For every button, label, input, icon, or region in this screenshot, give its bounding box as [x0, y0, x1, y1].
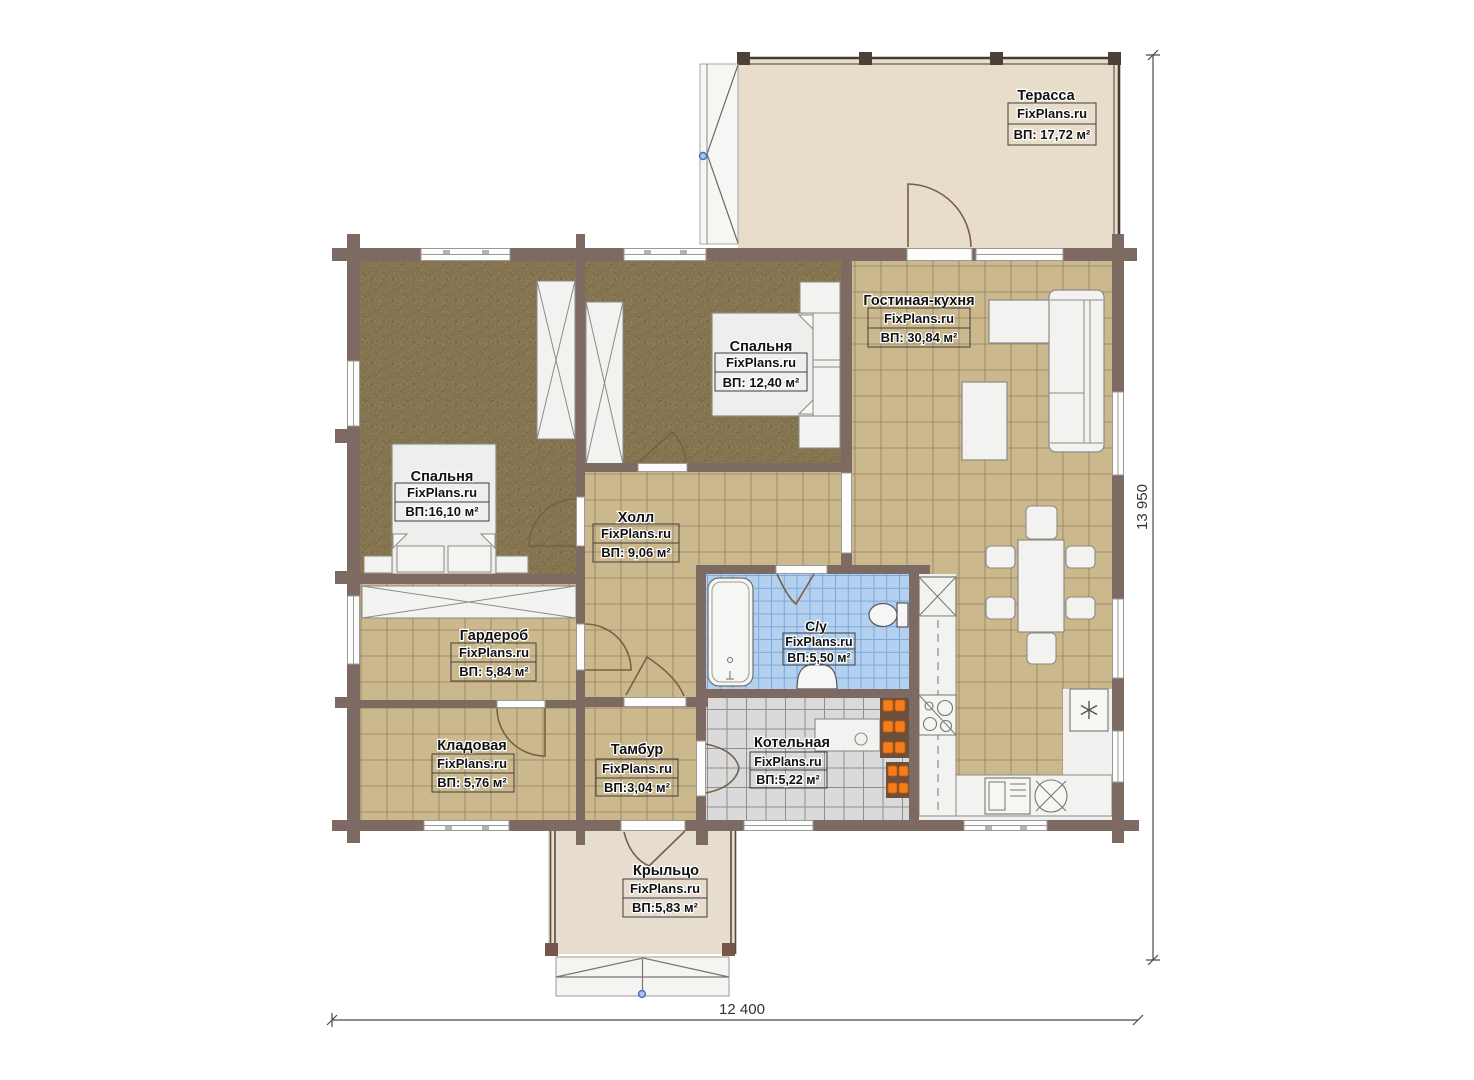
svg-text:FixPlans.ru: FixPlans.ru: [754, 755, 821, 769]
svg-text:С/у: С/у: [805, 618, 827, 634]
svg-text:FixPlans.ru: FixPlans.ru: [726, 355, 796, 370]
svg-text:Гардероб: Гардероб: [460, 628, 529, 644]
svg-text:Кладовая: Кладовая: [437, 738, 506, 754]
svg-text:Крыльцо: Крыльцо: [633, 863, 699, 879]
svg-text:ВП: 30,84 м²: ВП: 30,84 м²: [881, 330, 958, 345]
svg-text:FixPlans.ru: FixPlans.ru: [437, 756, 507, 771]
svg-text:ВП:5,50 м²: ВП:5,50 м²: [787, 651, 850, 665]
svg-text:ВП:5,22 м²: ВП:5,22 м²: [756, 773, 819, 787]
svg-text:13 950: 13 950: [1134, 484, 1151, 530]
svg-text:FixPlans.ru: FixPlans.ru: [602, 761, 672, 776]
svg-text:ВП: 5,76 м²: ВП: 5,76 м²: [437, 775, 507, 790]
svg-text:ВП: 17,72 м²: ВП: 17,72 м²: [1014, 127, 1091, 142]
svg-text:Терасса: Терасса: [1017, 88, 1075, 104]
svg-text:ВП: 9,06 м²: ВП: 9,06 м²: [601, 545, 671, 560]
svg-text:FixPlans.ru: FixPlans.ru: [1017, 106, 1087, 121]
svg-text:ВП:16,10 м²: ВП:16,10 м²: [405, 504, 479, 519]
svg-text:ВП: 12,40 м²: ВП: 12,40 м²: [723, 375, 800, 390]
svg-text:Тамбур: Тамбур: [611, 742, 664, 758]
svg-text:Котельная: Котельная: [754, 735, 830, 751]
svg-text:FixPlans.ru: FixPlans.ru: [785, 635, 852, 649]
svg-text:12 400: 12 400: [719, 1001, 765, 1018]
svg-text:FixPlans.ru: FixPlans.ru: [630, 881, 700, 896]
svg-text:FixPlans.ru: FixPlans.ru: [459, 645, 529, 660]
svg-text:ВП:3,04 м²: ВП:3,04 м²: [604, 780, 671, 795]
svg-text:ВП:5,83 м²: ВП:5,83 м²: [632, 900, 699, 915]
svg-text:FixPlans.ru: FixPlans.ru: [601, 526, 671, 541]
svg-text:ВП: 5,84 м²: ВП: 5,84 м²: [459, 664, 529, 679]
svg-text:FixPlans.ru: FixPlans.ru: [884, 311, 954, 326]
svg-text:Гостиная-кухня: Гостиная-кухня: [863, 293, 974, 309]
svg-text:FixPlans.ru: FixPlans.ru: [407, 485, 477, 500]
